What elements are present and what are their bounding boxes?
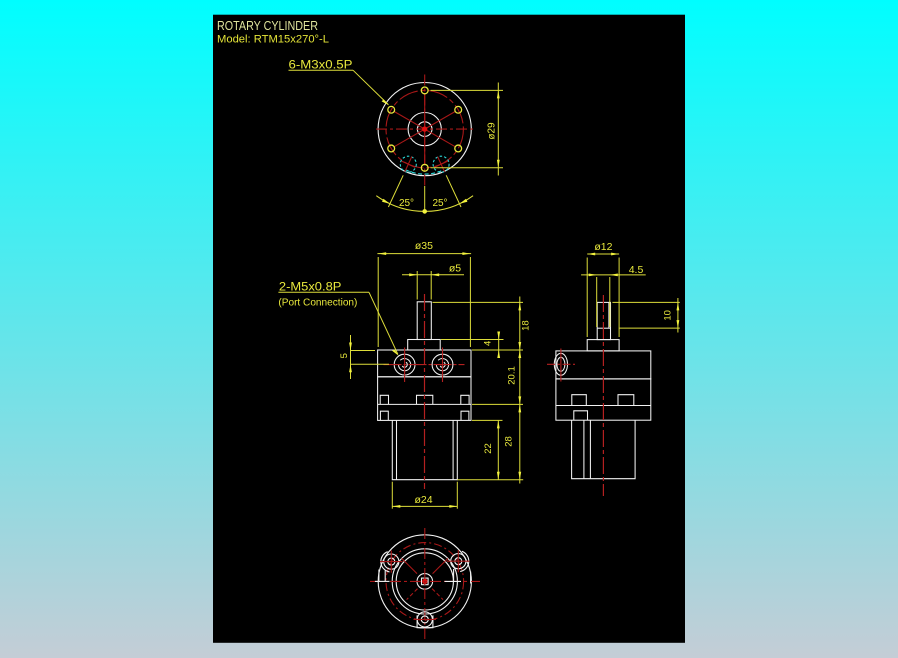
svg-text:10: 10 <box>663 310 674 321</box>
svg-text:Model: RTM15x270°-L: Model: RTM15x270°-L <box>217 34 329 46</box>
svg-text:ø12: ø12 <box>594 241 612 253</box>
svg-text:28: 28 <box>504 436 515 447</box>
svg-text:ø24: ø24 <box>414 494 432 506</box>
svg-text:ø5: ø5 <box>449 263 461 275</box>
svg-text:20.1: 20.1 <box>507 366 518 385</box>
svg-text:ø29: ø29 <box>487 122 498 140</box>
svg-text:6-M3x0.5P: 6-M3x0.5P <box>289 59 353 71</box>
svg-text:4: 4 <box>483 341 494 346</box>
svg-text:22: 22 <box>483 443 494 454</box>
svg-text:2-M5x0.8P: 2-M5x0.8P <box>279 280 342 294</box>
svg-text:25°: 25° <box>432 198 447 209</box>
svg-text:5: 5 <box>339 353 350 358</box>
svg-text:18: 18 <box>521 320 532 331</box>
svg-text:ROTARY CYLINDER: ROTARY CYLINDER <box>217 19 318 33</box>
svg-text:4.5: 4.5 <box>629 264 644 276</box>
svg-text:(Port Connection): (Port Connection) <box>278 297 357 308</box>
svg-text:25°: 25° <box>399 198 414 209</box>
svg-text:ø35: ø35 <box>415 240 433 252</box>
